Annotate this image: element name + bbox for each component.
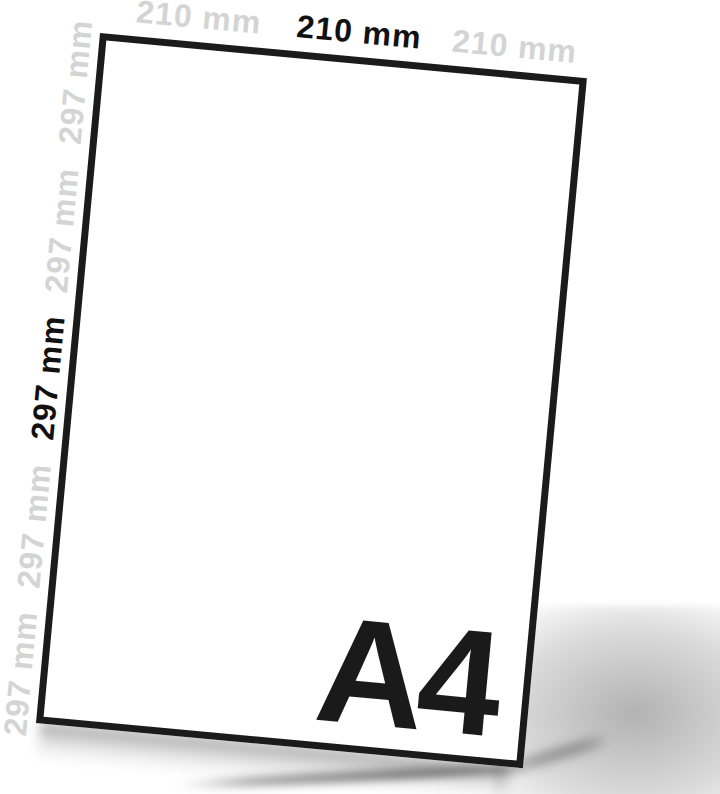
a4-paper-sheet: A4 bbox=[36, 33, 587, 768]
canvas: A4 210 mm 210 mm 210 mm 297 mm 297 mm 29… bbox=[0, 0, 720, 794]
paper-frame: A4 210 mm 210 mm 210 mm 297 mm 297 mm 29… bbox=[36, 33, 587, 768]
paper-contact-shadow bbox=[172, 764, 524, 790]
top-width-label-right: 210 mm bbox=[451, 25, 579, 68]
top-width-label-center: 210 mm bbox=[295, 10, 423, 53]
top-width-label-left: 210 mm bbox=[135, 0, 263, 39]
paper-format-label: A4 bbox=[310, 593, 501, 759]
